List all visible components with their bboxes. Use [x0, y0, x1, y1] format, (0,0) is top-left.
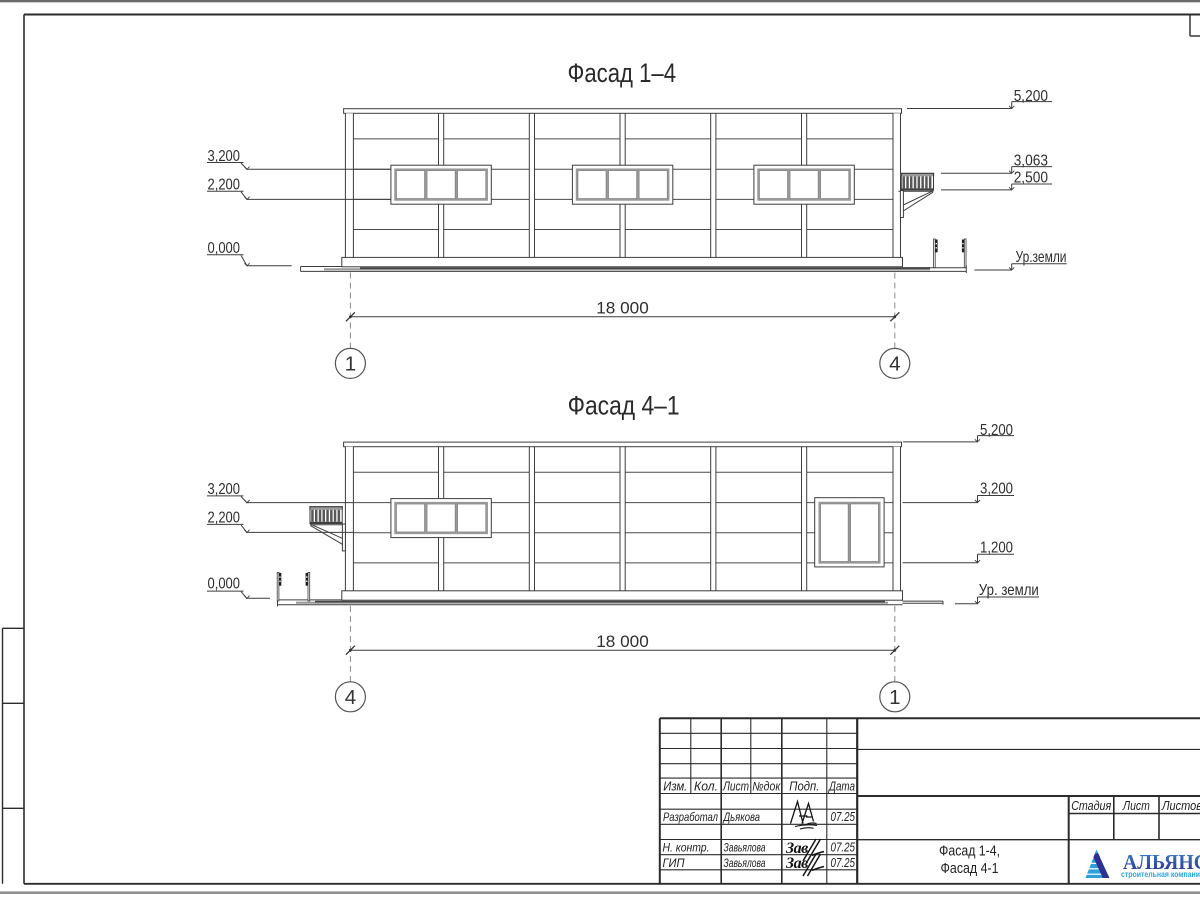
svg-text:Листов: Листов — [1161, 798, 1200, 813]
svg-text:Фасад 1-4,: Фасад 1-4, — [939, 843, 1000, 860]
svg-text:4: 4 — [345, 686, 356, 709]
svg-text:Дьякова: Дьякова — [722, 810, 760, 824]
svg-text:1,200: 1,200 — [980, 539, 1013, 556]
svg-text:Изм.: Изм. — [663, 779, 687, 793]
svg-text:07.25: 07.25 — [831, 856, 856, 870]
svg-text:07.25: 07.25 — [831, 841, 856, 855]
svg-text:строительная компания: строительная компания — [1121, 869, 1200, 879]
svg-text:Подп.: Подп. — [789, 779, 819, 793]
svg-text:Лист: Лист — [722, 779, 749, 793]
svg-text:Фасад 4-1: Фасад 4-1 — [941, 860, 999, 877]
svg-text:1: 1 — [345, 353, 356, 376]
svg-text:Ур.земли: Ур.земли — [1016, 249, 1067, 266]
svg-text:Дата: Дата — [827, 779, 855, 793]
svg-text:18 000: 18 000 — [596, 633, 649, 651]
svg-text:18 000: 18 000 — [596, 300, 649, 318]
svg-text:Зав: Зав — [785, 855, 808, 872]
svg-text:5,200: 5,200 — [1014, 88, 1048, 105]
svg-text:Н. контр.: Н. контр. — [663, 841, 710, 855]
svg-text:Разработал: Разработал — [663, 810, 718, 824]
svg-text:№док: №док — [752, 779, 781, 793]
svg-text:ГИП: ГИП — [663, 856, 685, 870]
svg-text:Стадия: Стадия — [1071, 798, 1111, 813]
svg-text:1: 1 — [889, 686, 900, 709]
svg-text:07.25: 07.25 — [831, 810, 856, 824]
svg-text:Завьялова: Завьялова — [724, 856, 766, 870]
svg-text:Фасад 4–1: Фасад 4–1 — [568, 391, 680, 421]
svg-text:5,200: 5,200 — [980, 422, 1013, 439]
svg-text:Кол.: Кол. — [694, 779, 718, 793]
svg-text:4: 4 — [889, 353, 900, 376]
svg-text:Фасад 1–4: Фасад 1–4 — [568, 58, 677, 88]
svg-text:Завьялова: Завьялова — [724, 841, 766, 855]
svg-text:Ур. земли: Ур. земли — [979, 582, 1039, 599]
svg-text:Лист: Лист — [1122, 798, 1150, 813]
svg-text:0,000: 0,000 — [208, 576, 241, 593]
